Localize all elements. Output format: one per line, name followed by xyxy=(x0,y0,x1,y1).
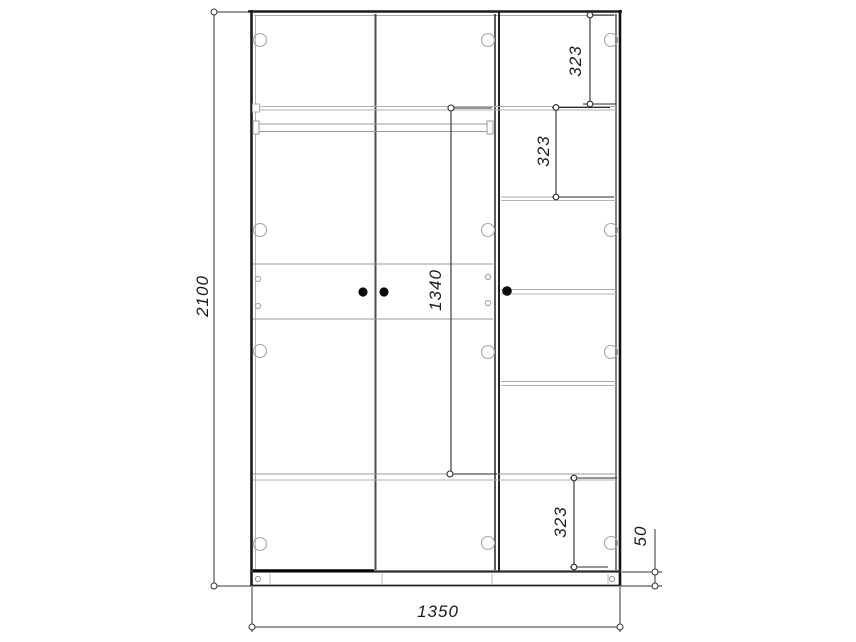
dim-label-bottom-shelf: 323 xyxy=(551,506,571,537)
dimension-overall-height xyxy=(211,9,254,589)
plinth xyxy=(250,574,621,586)
dimension-bottom-shelf xyxy=(570,475,617,570)
dim-marker xyxy=(571,475,577,481)
dim-marker xyxy=(553,194,559,200)
door-knob-icon xyxy=(502,286,512,296)
dim-marker xyxy=(587,101,593,107)
shelf-pin-icon xyxy=(485,300,490,305)
dim-label-overall-width: 1350 xyxy=(417,602,459,622)
rod-bracket-right xyxy=(487,121,493,134)
rod-bracket-left xyxy=(253,121,259,134)
shelf-pin-icon xyxy=(255,303,260,308)
dim-marker xyxy=(249,624,255,630)
top-shelf-left-bracket xyxy=(253,104,260,112)
hinge-icon xyxy=(482,537,495,550)
dimension-top-shelf xyxy=(583,12,616,107)
dim-marker xyxy=(211,9,217,15)
dim-label-hanging-height: 1340 xyxy=(426,269,446,311)
dim-marker xyxy=(652,583,658,589)
dim-label-second-shelf: 323 xyxy=(534,135,554,166)
dim-marker xyxy=(211,583,217,589)
dim-marker xyxy=(553,105,559,111)
hinge-icon xyxy=(482,34,495,47)
dim-label-plinth-height: 50 xyxy=(631,526,651,547)
dim-label-overall-height: 2100 xyxy=(193,275,213,317)
dimension-second-shelf xyxy=(552,104,614,200)
dim-marker xyxy=(447,471,453,477)
hinge-icon xyxy=(482,224,495,237)
foot-adjuster-right xyxy=(609,576,614,581)
door-knob-icon xyxy=(379,287,388,296)
hinge-icon xyxy=(482,346,495,359)
shelf-pin-icon xyxy=(485,274,490,279)
foot-adjuster-left xyxy=(255,576,260,581)
dim-marker xyxy=(617,624,623,630)
dimension-hanging-height xyxy=(447,105,497,477)
dim-marker xyxy=(652,569,658,575)
shelf-pin-icon xyxy=(255,276,260,281)
door-knob-icon xyxy=(358,287,367,296)
dim-marker xyxy=(571,564,577,570)
dim-label-top-shelf: 323 xyxy=(566,45,586,76)
dim-marker xyxy=(587,12,593,18)
dim-marker xyxy=(448,105,454,111)
drawing-linework xyxy=(0,0,856,642)
wardrobe-drawing: 2100 1350 1340 323 323 323 50 xyxy=(0,0,856,642)
